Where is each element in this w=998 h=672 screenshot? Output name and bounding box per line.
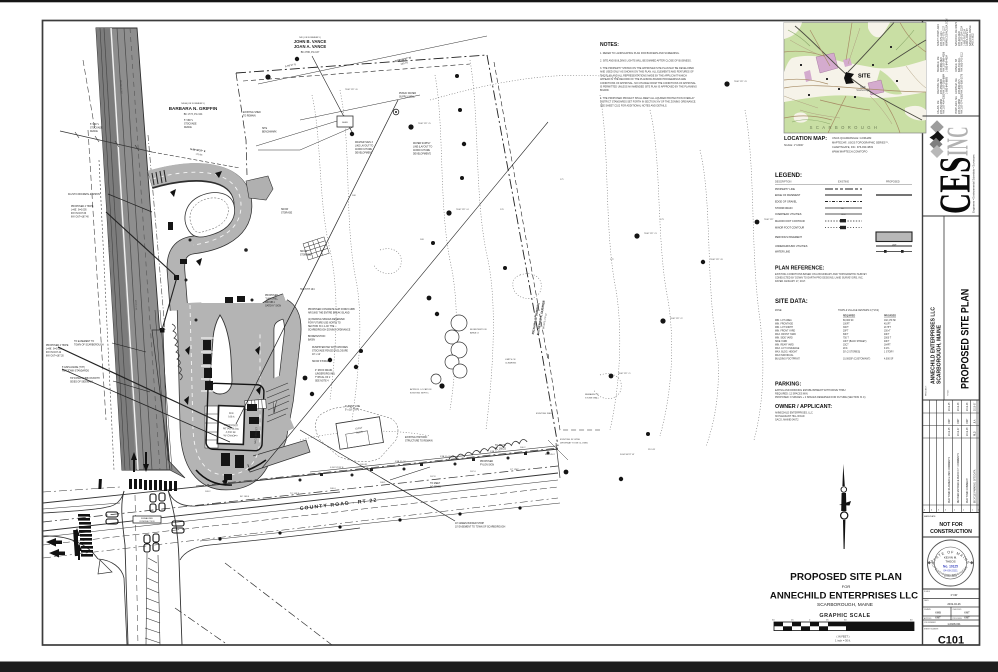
svg-text:UNDERGROUND UTILITIES: UNDERGROUND UTILITIES xyxy=(775,245,808,248)
svg-text:150+T: 150+T xyxy=(884,331,891,333)
svg-text:EDGE OF PAVEMENT: EDGE OF PAVEMENT xyxy=(775,194,801,197)
svg-text:UGP: UGP xyxy=(892,245,897,247)
svg-text:04-08-2021: 04-08-2021 xyxy=(943,569,958,573)
svg-text:CHECKED: CHECKED xyxy=(953,609,962,611)
svg-text:TC 168.9: TC 168.9 xyxy=(290,493,300,495)
svg-text:BICYCLE PARKING, SITE DATA: BICYCLE PARKING, SITE DATA xyxy=(974,469,977,503)
svg-text:SIDES OF SIDEWALK: SIDES OF SIDEWALK xyxy=(70,381,94,384)
svg-text:BENCHMARK: BENCHMARK xyxy=(262,131,277,134)
svg-text:EXISTING 30' WIDE: EXISTING 30' WIDE xyxy=(560,439,581,441)
svg-text:KMT: KMT xyxy=(964,616,970,620)
svg-text:169.5: 169.5 xyxy=(228,415,235,418)
svg-text:FENCE: FENCE xyxy=(184,127,192,129)
svg-text:TITLE:: TITLE: xyxy=(948,389,950,396)
svg-text:5' VINYL: 5' VINYL xyxy=(90,124,100,126)
svg-text:INV IN=167.63: INV IN=167.63 xyxy=(71,213,87,215)
svg-text:BK 1773, PG 344: BK 1773, PG 344 xyxy=(184,113,203,116)
svg-text:TEST PIT #6: TEST PIT #6 xyxy=(345,89,358,91)
svg-text:SCARBOROUGH: SCARBOROUGH xyxy=(810,125,881,130)
svg-text:STOCKADE: STOCKADE xyxy=(184,123,197,126)
svg-text:LOCATION MAP:: LOCATION MAP: xyxy=(784,136,827,142)
svg-text:410FT: 410FT xyxy=(884,324,891,326)
svg-text:EXISTING SHED: EXISTING SHED xyxy=(243,112,261,114)
svg-text:RLD: RLD xyxy=(975,431,977,436)
svg-text:SCARBOROUGH, MAINE: SCARBOROUGH, MAINE xyxy=(817,602,873,608)
svg-text:DUMPSTER PAD WITH WOODEN: DUMPSTER PAD WITH WOODEN xyxy=(312,346,348,349)
svg-text:3: 3 xyxy=(938,510,939,512)
svg-text:TEST PIT #4: TEST PIT #4 xyxy=(456,209,469,211)
svg-text:10' EASEMENT TO TOWN OF SCARBO: 10' EASEMENT TO TOWN OF SCARBOROUGH xyxy=(455,526,506,529)
svg-text:PUBLIC WATER: PUBLIC WATER xyxy=(399,92,416,95)
svg-text:166.2: 166.2 xyxy=(520,447,526,449)
svg-text:TOWN OF SCARBOROUGH: TOWN OF SCARBOROUGH xyxy=(74,344,104,347)
svg-text:INV 165.2: INV 165.2 xyxy=(545,454,556,456)
svg-text:STRUCTURE TO REMAIN: STRUCTURE TO REMAIN xyxy=(405,440,433,443)
svg-text:TEST PIT 104: TEST PIT 104 xyxy=(300,289,315,291)
svg-text:PROJECT:: PROJECT: xyxy=(926,385,928,396)
svg-text:SCARBOROUGH, MAINE: SCARBOROUGH, MAINE xyxy=(936,325,942,384)
svg-text:SCARBOROUGH ZONING ORDINANCE: SCARBOROUGH ZONING ORDINANCE xyxy=(308,329,351,332)
svg-text:SCALE: SCALE xyxy=(924,590,931,593)
svg-text:9.1%: 9.1% xyxy=(884,348,889,350)
svg-text:2: 2 xyxy=(963,510,964,512)
svg-text:OVERHEAD UTILITIES: OVERHEAD UTILITIES xyxy=(775,213,802,216)
svg-text:9' x 18' (TYP): 9' x 18' (TYP) xyxy=(345,410,359,412)
svg-text:SHED: SHED xyxy=(342,122,348,124)
svg-text:MIN. LOT WIDTH: MIN. LOT WIDTH xyxy=(775,327,793,329)
svg-text:DESCRIPTION: DESCRIPTION xyxy=(775,181,792,184)
svg-text:EDGE OF GRAVEL: EDGE OF GRAVEL xyxy=(775,201,798,204)
svg-text:WWW.MAPTECH.COM/TOPO: WWW.MAPTECH.COM/TOPO xyxy=(832,150,867,154)
svg-text:4" ROOF DRAIN: 4" ROOF DRAIN xyxy=(315,369,332,372)
svg-text:AROUND THE ENTIRE BREAK ISLAND: AROUND THE ENTIRE BREAK ISLAND xyxy=(308,312,350,315)
svg-text:JOAN A. VANCE: JOAN A. VANCE xyxy=(294,44,327,49)
svg-text:SNOW STORAGE: SNOW STORAGE xyxy=(312,360,331,363)
svg-text:2019-05: 2019-05 xyxy=(949,402,951,411)
svg-text:1 inch = 30 ft.: 1 inch = 30 ft. xyxy=(835,639,851,643)
svg-text:AVOID FUTURE: AVOID FUTURE xyxy=(355,148,372,151)
svg-text:AC 110.01: AC 110.01 xyxy=(430,486,441,489)
svg-text:REMAINS OF: REMAINS OF xyxy=(585,393,599,396)
svg-text:OWNER / APPLICANT:: OWNER / APPLICANT: xyxy=(775,404,832,410)
svg-text:40FT: 40FT xyxy=(884,334,890,336)
svg-text:60FT: 60FT xyxy=(843,334,849,336)
svg-text:1-800-649-8693: 1-800-649-8693 xyxy=(945,76,948,94)
svg-text:STONE WALL: STONE WALL xyxy=(585,397,600,400)
svg-text:TEST PIT #1: TEST PIT #1 xyxy=(618,373,631,375)
svg-text:SUPPLY WELL: SUPPLY WELL xyxy=(399,97,415,99)
svg-text:TEST PIT #5: TEST PIT #5 xyxy=(418,123,431,125)
svg-text:BUILDING FOOTPRINT: BUILDING FOOTPRINT xyxy=(775,359,800,361)
svg-text:PROPOSED SITE PLAN: PROPOSED SITE PLAN xyxy=(790,572,902,583)
svg-text:IS PERMITTED UNLESS AN AMENDED: IS PERMITTED UNLESS AN AMENDED SITE PLAN… xyxy=(600,86,697,89)
svg-text:PROPOSED: PROPOSED xyxy=(886,181,900,184)
svg-text:PROPOSED 4' HDPE: PROPOSED 4' HDPE xyxy=(71,206,94,208)
svg-text:NOT FOR: NOT FOR xyxy=(939,522,963,528)
svg-text:FOR: FOR xyxy=(842,584,851,589)
svg-text:167.4: 167.4 xyxy=(470,471,476,473)
svg-text:1: 1 xyxy=(972,510,973,512)
svg-text:1. REFER TO LANDSCAPING PLAN F: 1. REFER TO LANDSCAPING PLAN FOR BUFFERS… xyxy=(600,52,680,55)
svg-text:TEST PIT #3: TEST PIT #3 xyxy=(644,233,657,235)
svg-text:DRIVEWAY TO BE CLOSED: DRIVEWAY TO BE CLOSED xyxy=(560,442,588,445)
svg-text:KMB: KMB xyxy=(935,611,941,615)
svg-text:MARK/DATE: MARK/DATE xyxy=(924,515,936,518)
svg-text:PROPOSED: PROPOSED xyxy=(480,461,493,463)
svg-text:SNOW: SNOW xyxy=(281,209,289,211)
svg-text:40FT: 40FT xyxy=(884,341,890,343)
svg-text:(2) PARKING SPACES RESERVED: (2) PARKING SPACES RESERVED xyxy=(308,318,345,321)
svg-text:SEE NOTE 4: SEE NOTE 4 xyxy=(315,381,329,383)
svg-text:BOARD.: BOARD. xyxy=(600,89,610,92)
svg-text:PERVIOUS PAVEMENT: PERVIOUS PAVEMENT xyxy=(775,236,802,239)
svg-text:DRAWN: DRAWN xyxy=(924,608,931,611)
svg-text:5' ESPLANADE (TYP): 5' ESPLANADE (TYP) xyxy=(62,366,85,369)
svg-text:W/ CANOPY: W/ CANOPY xyxy=(223,434,238,438)
svg-text:AVOID FUTURE: AVOID FUTURE xyxy=(413,149,430,152)
svg-text:WWW.CESINCUSA.COM: WWW.CESINCUSA.COM xyxy=(945,19,948,47)
svg-text:4: 4 xyxy=(931,510,932,512)
svg-text:KMT: KMT xyxy=(964,611,970,615)
svg-text:2019-05: 2019-05 xyxy=(949,427,951,436)
svg-text:PROJ ENG: PROJ ENG xyxy=(953,618,963,620)
svg-text:1 STORY: 1 STORY xyxy=(884,352,894,354)
svg-text:MIN. LOT AREA: MIN. LOT AREA xyxy=(775,319,792,322)
svg-text:04073-3522: 04073-3522 xyxy=(972,33,975,46)
svg-text:EXISTING SEPTIC: EXISTING SEPTIC xyxy=(410,393,429,395)
svg-text:TO REMAIN: TO REMAIN xyxy=(243,115,256,118)
svg-text:3. THE PROPERTY SHOWN ON THE A: 3. THE PROPERTY SHOWN ON THE APPROVED SI… xyxy=(600,67,694,70)
svg-text:PER TOWN STANDARDS: PER TOWN STANDARDS xyxy=(62,370,89,373)
svg-text:DATED JANUARY 17, 2017.: DATED JANUARY 17, 2017. xyxy=(775,280,806,283)
svg-text:L=85', S=0.005: L=85', S=0.005 xyxy=(71,210,87,212)
svg-text:SITE: SITE xyxy=(262,128,268,130)
svg-text:2019-06: 2019-06 xyxy=(958,402,960,411)
svg-text:REQUIRED: REQUIRED xyxy=(843,316,855,318)
svg-text:BARBARA N. GRIFFIN: BARBARA N. GRIFFIN xyxy=(169,106,218,111)
svg-text:PER TOWN COMMENT: PER TOWN COMMENT xyxy=(967,478,969,503)
svg-text:N/F/A (OR FORMERLY): N/F/A (OR FORMERLY) xyxy=(181,102,205,105)
svg-text:TIP DOWN CURB ON BOTH: TIP DOWN CURB ON BOTH xyxy=(70,378,100,380)
svg-text:15CT: 15CT xyxy=(843,345,849,347)
svg-text:2. SITE AND BUILDING LIGHTS WI: 2. SITE AND BUILDING LIGHTS WILL BE DIMM… xyxy=(600,60,692,63)
svg-text:STORM DRAIN: STORM DRAIN xyxy=(775,207,793,210)
svg-text:TEST PIT #9: TEST PIT #9 xyxy=(734,81,747,83)
svg-text:INV IN=167.42: INV IN=167.42 xyxy=(46,352,62,354)
svg-text:DATE: DATE xyxy=(924,599,929,602)
svg-text:EXISTING HISTORIC: EXISTING HISTORIC xyxy=(405,437,428,439)
svg-text:LICENSED: LICENSED xyxy=(944,574,957,578)
svg-text:CONSTRUCTION: CONSTRUCTION xyxy=(930,529,972,535)
svg-text:N/F (OR FORMERLY): N/F (OR FORMERLY) xyxy=(299,37,321,39)
svg-text:PYLON SIGN: PYLON SIGN xyxy=(480,465,494,467)
svg-text:160.49': 160.49' xyxy=(360,464,368,466)
svg-text:FAX 207-454-0352: FAX 207-454-0352 xyxy=(943,93,946,114)
svg-text:MAJOR FOOT CONTOUR: MAJOR FOOT CONTOUR xyxy=(775,220,805,223)
svg-text:STA 10+50: STA 10+50 xyxy=(395,460,407,463)
svg-text:REVISED ENTRANCE PER D.O.T. CO: REVISED ENTRANCE PER D.O.T. COMMENTS xyxy=(957,453,960,503)
svg-text:KMT: KMT xyxy=(949,418,951,423)
svg-text:BASIN: BASIN xyxy=(308,339,315,342)
svg-text:STA 11+00: STA 11+00 xyxy=(440,455,451,458)
svg-text:21%: 21% xyxy=(843,348,848,350)
svg-text:"GAS GRILL: "GAS GRILL xyxy=(265,298,279,301)
svg-text:167.8: 167.8 xyxy=(430,476,436,478)
svg-text:192,179 SF: 192,179 SF xyxy=(884,320,896,322)
svg-text:10' GREEN BUFFER STRIP: 10' GREEN BUFFER STRIP xyxy=(455,523,484,525)
svg-text:2019-04-26: 2019-04-26 xyxy=(947,602,961,606)
svg-text:STORAGE: STORAGE xyxy=(300,254,312,257)
svg-text:EXISTING WELL: EXISTING WELL xyxy=(536,413,554,415)
svg-text:S 84°12'33" E: S 84°12'33" E xyxy=(330,467,344,469)
svg-text:LEGEND:: LEGEND: xyxy=(775,173,802,179)
svg-text:LIMITS OF: LIMITS OF xyxy=(505,359,516,361)
svg-text:MASTER SIGN 3: MASTER SIGN 3 xyxy=(355,141,373,144)
svg-text:STORAGE: STORAGE xyxy=(281,212,293,215)
svg-text:300 MB.1: 300 MB.1 xyxy=(265,302,276,304)
svg-text:PROPOSED: PROPOSED xyxy=(265,295,278,297)
svg-text:FAX 207-774-3352: FAX 207-774-3352 xyxy=(961,93,964,114)
svg-text:THEOS: THEOS xyxy=(945,560,955,564)
svg-text:300'T: 300'T xyxy=(843,327,849,329)
svg-text:NOTES:: NOTES: xyxy=(600,42,619,48)
svg-text:20FT: 20FT xyxy=(843,331,849,333)
svg-text:2019-07: 2019-07 xyxy=(958,427,960,436)
svg-text:AREA #2: AREA #2 xyxy=(470,332,480,335)
svg-text:(UNDERGROUND): (UNDERGROUND) xyxy=(315,374,335,376)
svg-text:INTERSECTION: INTERSECTION xyxy=(140,521,155,523)
svg-text:SITE: SITE xyxy=(858,74,871,80)
svg-text:4" PAINT LINE: 4" PAINT LINE xyxy=(345,405,360,408)
svg-text:FLUSH CONCRETE & APRON: FLUSH CONCRETE & APRON xyxy=(68,193,100,196)
svg-text:N 84°36'22" W: N 84°36'22" W xyxy=(620,454,635,456)
svg-text:MAX INDIVIDUAL: MAX INDIVIDUAL xyxy=(775,354,794,357)
svg-text:OHU: OHU xyxy=(841,214,846,216)
svg-text:SECTION XI.C.1-CF THE: SECTION XI.C.1-CF THE xyxy=(308,326,335,328)
svg-text:MIN. REAR YARD: MIN. REAR YARD xyxy=(775,344,794,347)
svg-text:JOB NUMBER: JOB NUMBER xyxy=(924,622,936,624)
svg-text:INV OUT=167.20: INV OUT=167.20 xyxy=(46,356,64,358)
svg-text:APPRVD: APPRVD xyxy=(924,617,932,620)
svg-text:GATEAY" SIGN: GATEAY" SIGN xyxy=(265,305,281,308)
svg-text:DEVELOPMENT): DEVELOPMENT) xyxy=(413,154,431,156)
svg-text:SACO, MAINE 04072: SACO, MAINE 04072 xyxy=(775,419,799,422)
svg-text:1-800-649-4824: 1-800-649-4824 xyxy=(945,54,948,72)
svg-text:PROPOSED 4' HDPE: PROPOSED 4' HDPE xyxy=(46,345,69,347)
svg-text:Engineers ▪ Environmental Scie: Engineers ▪ Environmental Scientists ▪ S… xyxy=(972,154,976,213)
svg-text:PROPOSED CONCRETE SLIP FORM CU: PROPOSED CONCRETE SLIP FORM CURB xyxy=(308,309,355,311)
svg-text:MIN. SIDE YARD: MIN. SIDE YARD xyxy=(775,337,793,340)
svg-text:PROPOSED: 9 SPACES + 2 SPACES: PROPOSED: 9 SPACES + 2 SPACES RESERVED F… xyxy=(775,396,866,399)
svg-text:USGS QUADRANGLE: GORHAM: USGS QUADRANGLE: GORHAM xyxy=(832,136,871,140)
svg-text:PROVIDED: PROVIDED xyxy=(884,316,896,318)
svg-text:ZONE:: ZONE: xyxy=(775,310,782,312)
svg-text:FENCE: FENCE xyxy=(90,131,98,133)
svg-text:North: North xyxy=(860,86,866,89)
svg-text:INV OUT=167.40: INV OUT=167.40 xyxy=(71,217,89,219)
svg-text:C101: C101 xyxy=(938,635,964,647)
svg-text:SCALE: 1"=2000': SCALE: 1"=2000' xyxy=(784,144,804,147)
svg-text:PARKING:: PARKING: xyxy=(775,382,801,388)
svg-text:TEST PIT: TEST PIT xyxy=(764,219,774,221)
svg-text:FAX 603-742-3112: FAX 603-742-3112 xyxy=(961,51,964,72)
svg-text:WATER SUPPLY: WATER SUPPLY xyxy=(413,142,431,145)
svg-text:SIGNALIZED: SIGNALIZED xyxy=(141,517,153,520)
svg-text:PROPERTY LINE: PROPERTY LINE xyxy=(775,188,795,191)
svg-text:STOCKADE FENCE ENCLOSURE: STOCKADE FENCE ENCLOSURE xyxy=(312,350,348,353)
svg-text:1-0928-001: 1-0928-001 xyxy=(947,622,961,626)
svg-text:( IN FEET ): ( IN FEET ) xyxy=(836,635,849,639)
svg-text:2019-06: 2019-06 xyxy=(967,402,969,411)
svg-text:L=86', S=0.005: L=86', S=0.005 xyxy=(46,349,62,351)
svg-text:SITE DATA:: SITE DATA: xyxy=(775,299,808,305)
svg-text:KMT: KMT xyxy=(958,418,960,423)
svg-text:MIN. FRONT YARD: MIN. FRONT YARD xyxy=(775,330,796,333)
svg-text:2: 2 xyxy=(954,510,955,512)
svg-text:BIORETENTION: BIORETENTION xyxy=(308,336,326,338)
svg-text:TYPICAL OF 2: TYPICAL OF 2 xyxy=(315,376,331,379)
svg-text:4. THE PROPOSED PROJECT SHALL: 4. THE PROPOSED PROJECT SHALL MEET ALL A… xyxy=(600,97,695,100)
svg-text:MAX. BLDG. HEIGHT: MAX. BLDG. HEIGHT xyxy=(775,351,798,354)
svg-text:TO EASEMENT TO: TO EASEMENT TO xyxy=(74,340,94,343)
svg-text:BC 168.25: BC 168.25 xyxy=(495,449,507,451)
svg-text:ANNECHILD ENTERPRISES LLC: ANNECHILD ENTERPRISES LLC xyxy=(770,591,918,602)
svg-text:SEE SHEET C102 FOR ADDITIONAL: SEE SHEET C102 FOR ADDITIONAL NOTES AND … xyxy=(600,104,667,107)
svg-text:FAX 207-839-2775: FAX 207-839-2775 xyxy=(961,73,964,94)
svg-text:4,000 SF: 4,000 SF xyxy=(884,359,894,361)
svg-text:3: 3 xyxy=(945,510,946,512)
svg-text:PLAN REFERENCE:: PLAN REFERENCE: xyxy=(775,266,825,272)
svg-text:GRAPHIC SCALE: GRAPHIC SCALE xyxy=(819,613,870,619)
svg-text:THE PLAN AND ALL REPRESENTATIO: THE PLAN AND ALL REPRESENTATIONS MADE BY… xyxy=(600,74,687,77)
svg-text:TEST PIT #8: TEST PIT #8 xyxy=(710,259,723,261)
svg-text:LINE (LAYOUT TO: LINE (LAYOUT TO xyxy=(413,146,432,149)
svg-text:KMT: KMT xyxy=(967,418,969,423)
svg-text:MAX. FRONT YARD: MAX. FRONT YARD xyxy=(775,333,796,336)
svg-text:4: 4 xyxy=(924,510,925,512)
svg-text:WATER LINE: WATER LINE xyxy=(775,251,790,254)
svg-text:0: 0 xyxy=(978,510,979,512)
svg-text:164FT: 164FT xyxy=(884,345,891,347)
svg-text:SNOW: SNOW xyxy=(300,251,308,253)
svg-text:CONDITIONS OF APPROVAL. NO CHA: CONDITIONS OF APPROVAL. NO CHANGE FROM T… xyxy=(600,82,697,85)
svg-text:BC 168.4: BC 168.4 xyxy=(240,496,250,498)
svg-text:CHARTSGATE, INC. 976-933-3833: CHARTSGATE, INC. 976-933-3833 xyxy=(832,145,874,149)
svg-text:100FT: 100FT xyxy=(843,324,850,326)
svg-text:CLEARING: CLEARING xyxy=(505,362,516,365)
svg-text:SHEET NUMBER: SHEET NUMBER xyxy=(924,629,939,631)
svg-text:12" CMP: 12" CMP xyxy=(510,469,519,471)
svg-text:750 T: 750 T xyxy=(843,338,849,340)
svg-text:MAPTECH®, USGS TOPOGRAPHIC SER: MAPTECH®, USGS TOPOGRAPHIC SERIES™, xyxy=(832,141,889,145)
svg-text:APPROX. LOCATION: APPROX. LOCATION xyxy=(410,388,432,391)
svg-text:MINOR FOOT CONTOUR: MINOR FOOT CONTOUR xyxy=(775,227,804,230)
svg-text:10' x 12': 10' x 12' xyxy=(312,354,321,356)
svg-text:EXISTING: EXISTING xyxy=(838,181,849,184)
svg-text:AND USED ONLY AS SHOWN ON THIS: AND USED ONLY AS SHOWN ON THIS PLAN. ALL… xyxy=(600,71,694,74)
svg-text:TC 168.75: TC 168.75 xyxy=(495,445,506,447)
svg-text:APPEAR IN THE RECORD OF THE PL: APPEAR IN THE RECORD OF THE PLANNING BOA… xyxy=(600,78,686,81)
svg-text:BIORETENTION: BIORETENTION xyxy=(470,329,487,331)
svg-text:DISTRICT STANDARDS SET FORTH I: DISTRICT STANDARDS SET FORTH IN SECTION … xyxy=(600,101,696,104)
svg-text:JLA: JLA xyxy=(974,419,977,423)
svg-text:50' (2 STORIES): 50' (2 STORIES) xyxy=(843,352,860,354)
svg-text:MAX. LOT COVERAGE: MAX. LOT COVERAGE xyxy=(775,347,800,350)
svg-text:INC: INC xyxy=(942,126,975,156)
svg-text:2175'T: 2175'T xyxy=(884,327,892,329)
svg-text:168.1: 168.1 xyxy=(380,482,386,484)
svg-text:TEST PIT #2: TEST PIT #2 xyxy=(670,318,683,320)
svg-text:FOR FUTURE USE NORTH TO: FOR FUTURE USE NORTH TO xyxy=(308,323,341,325)
svg-text:PROPOSED SITE PLAN: PROPOSED SITE PLAN xyxy=(960,289,972,389)
svg-text:1"=30': 1"=30' xyxy=(950,593,958,597)
svg-text:PER TOWN PLANNER & CMO COMMENT: PER TOWN PLANNER & CMO COMMENTS xyxy=(948,457,951,503)
svg-text:LIKE LAYOUT TO: LIKE LAYOUT TO xyxy=(355,145,374,148)
svg-text:DEVELOPMENT: DEVELOPMENT xyxy=(355,153,373,155)
svg-text:MIN. FRONTAGE: MIN. FRONTAGE xyxy=(775,323,794,326)
svg-text:STOCKADE: STOCKADE xyxy=(90,127,103,130)
svg-text:168.4: 168.4 xyxy=(330,488,336,490)
svg-text:80,000 SF: 80,000 SF xyxy=(843,320,854,322)
svg-text:212.43': 212.43' xyxy=(648,449,656,451)
svg-text:10FT (BACK STREET): 10FT (BACK STREET) xyxy=(843,340,867,343)
svg-text:SIDE YARD: SIDE YARD xyxy=(775,340,788,343)
svg-text:2019-07: 2019-07 xyxy=(975,402,977,411)
svg-text:5' VINYL: 5' VINYL xyxy=(184,120,194,122)
svg-text:Scarborough: Scarborough xyxy=(856,89,870,92)
svg-text:2000 T: 2000 T xyxy=(884,338,892,340)
svg-text:TO MEET: TO MEET xyxy=(430,483,441,485)
svg-text:169.2: 169.2 xyxy=(205,491,211,493)
svg-text:TOWN & VILLAGE CENTERS 2 (TVC2: TOWN & VILLAGE CENTERS 2 (TVC2) xyxy=(838,309,879,312)
svg-text:KMT: KMT xyxy=(935,616,941,620)
svg-text:BK 2786, PG 167: BK 2786, PG 167 xyxy=(301,51,320,54)
svg-text:2019-08: 2019-08 xyxy=(967,427,969,436)
svg-text:10,000SF (CUSTOM/ANT): 10,000SF (CUSTOM/ANT) xyxy=(843,358,871,361)
